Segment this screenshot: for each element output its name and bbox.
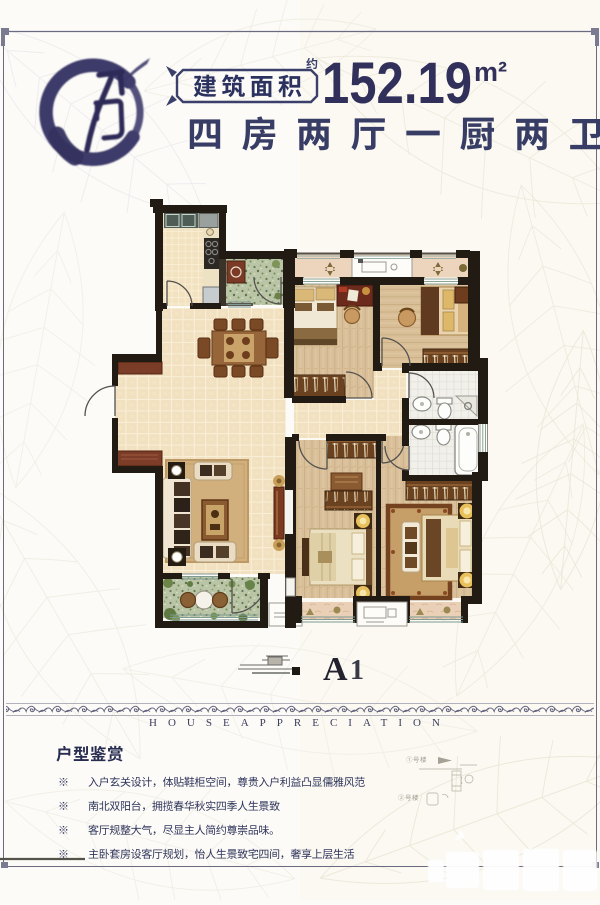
svg-text:1: 1	[350, 655, 364, 686]
svg-text:152.19: 152.19	[322, 51, 472, 116]
svg-text:m²: m²	[474, 57, 507, 87]
svg-text:HOUSEAPPRECIATION: HOUSEAPPRECIATION	[149, 717, 451, 729]
svg-text:A: A	[323, 651, 348, 688]
